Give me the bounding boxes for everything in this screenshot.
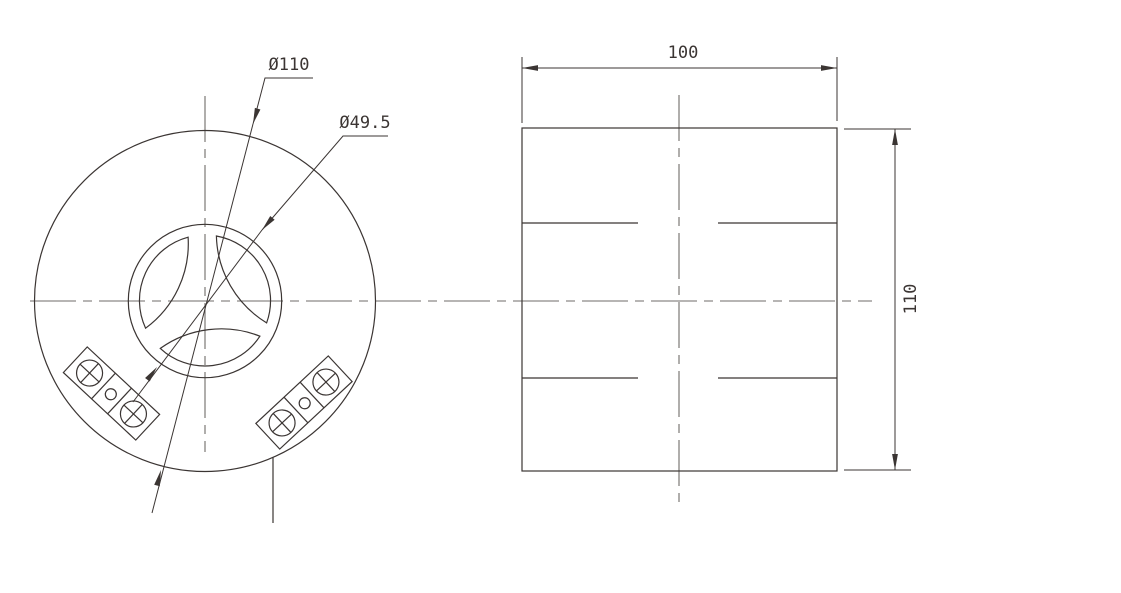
label-outer-diameter: Ø110 [269, 55, 310, 75]
label-inner-diameter: Ø49.5 [339, 113, 390, 133]
label-width: 100 [668, 43, 699, 63]
drawing-background [0, 0, 1121, 593]
technical-drawing-canvas: Ø110 Ø49.5 100 110 [0, 0, 1121, 593]
technical-drawing: Ø110 Ø49.5 100 110 [0, 0, 1121, 593]
label-height: 110 [901, 284, 921, 315]
